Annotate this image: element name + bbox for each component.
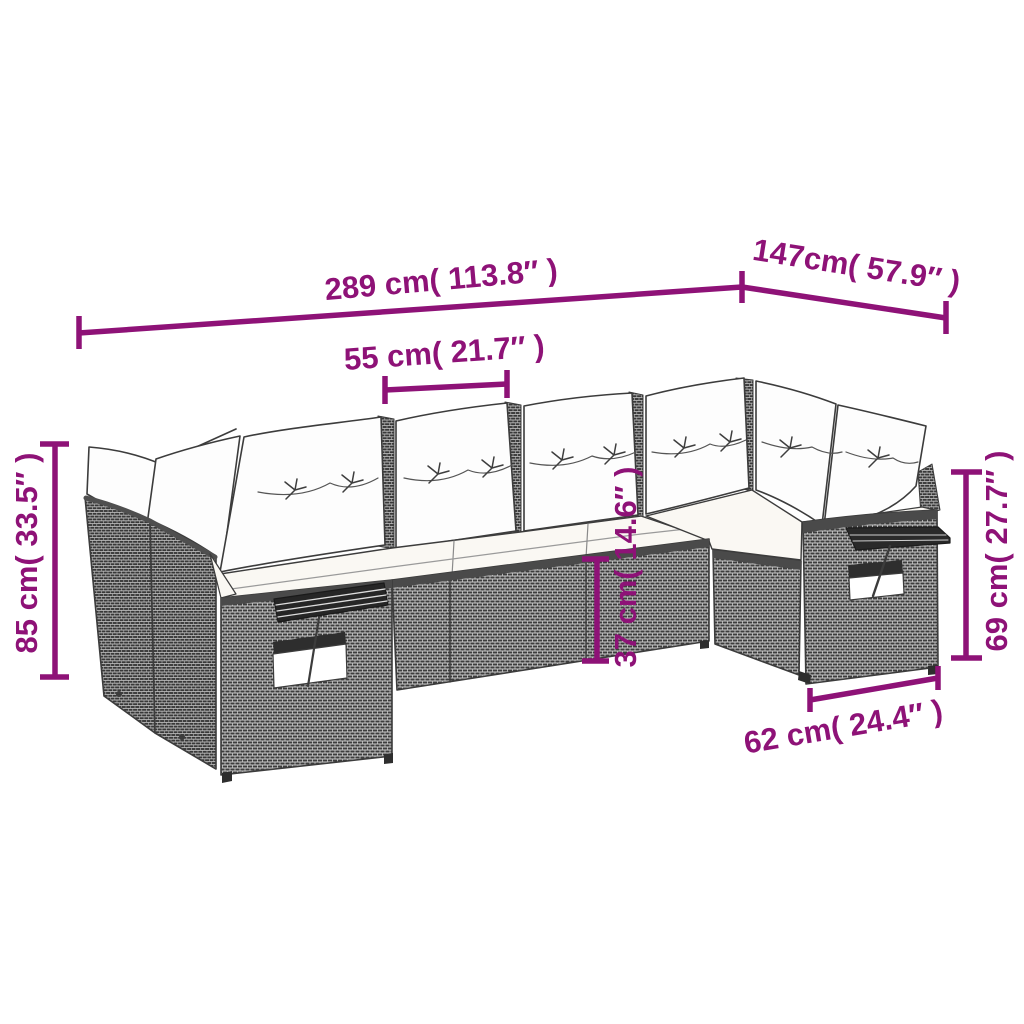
svg-text:85 cm( 33.5″ ): 85 cm( 33.5″ ) (9, 453, 44, 654)
svg-text:69 cm( 27.7″ ): 69 cm( 27.7″ ) (979, 451, 1014, 652)
svg-text:37 cm( 14.6″ ): 37 cm( 14.6″ ) (608, 467, 643, 668)
